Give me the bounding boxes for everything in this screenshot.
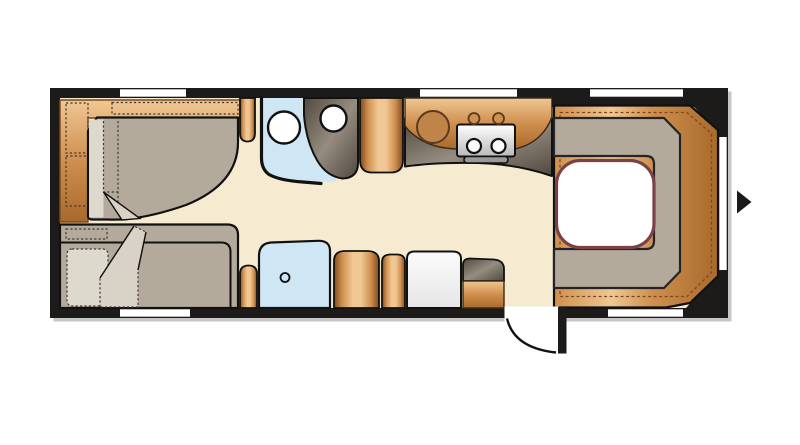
door-swing-arc bbox=[507, 319, 556, 353]
burner-large-icon bbox=[467, 139, 481, 153]
window-bottom-right bbox=[608, 309, 683, 316]
bed-pillow-top bbox=[89, 120, 104, 218]
window-bottom-left bbox=[120, 309, 190, 316]
caravan-floorplan bbox=[0, 0, 800, 445]
entry-door-group bbox=[505, 307, 567, 354]
burner-small-icon bbox=[469, 113, 480, 124]
kitchen-sink bbox=[417, 111, 449, 143]
washbasin bbox=[321, 106, 347, 132]
door-opening bbox=[505, 307, 559, 324]
cabinet-column bbox=[240, 266, 257, 309]
stove bbox=[457, 125, 515, 157]
window-top-middle bbox=[420, 89, 517, 96]
kitchen-cabinet bbox=[334, 251, 379, 308]
burner-small-icon bbox=[493, 113, 504, 124]
window-top-right bbox=[590, 89, 683, 96]
burner-large-icon bbox=[492, 139, 506, 153]
dinette-group bbox=[552, 98, 718, 308]
corner-unit-base bbox=[463, 281, 504, 308]
washroom-group bbox=[240, 98, 403, 184]
wardrobe-tall bbox=[360, 98, 403, 173]
floorplan-svg bbox=[0, 0, 800, 445]
fridge bbox=[407, 252, 461, 309]
window-rear bbox=[719, 137, 726, 270]
toilet bbox=[268, 112, 300, 144]
oven-handle bbox=[464, 157, 508, 164]
entrance-arrow-icon bbox=[737, 191, 752, 214]
dinette-table bbox=[557, 161, 655, 248]
shower bbox=[259, 241, 330, 308]
kitchen-cabinet-narrow bbox=[382, 255, 405, 309]
window-top-left bbox=[120, 89, 186, 96]
corner-unit-top bbox=[463, 259, 504, 282]
wardrobe-column bbox=[240, 98, 255, 142]
entry-door bbox=[558, 307, 567, 354]
